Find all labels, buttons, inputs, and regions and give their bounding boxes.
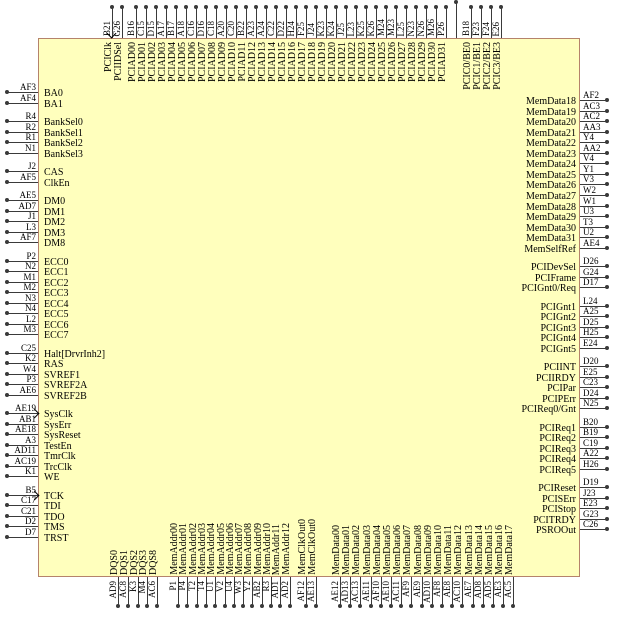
pin-label: DQS8 [148, 550, 159, 575]
pin-code: AF2 [583, 90, 613, 100]
pin-wire [580, 469, 607, 470]
pin-dot [358, 604, 362, 608]
pin-label: MemData07 [402, 525, 413, 575]
pin-wire [580, 287, 607, 288]
pin-label: DM1 [44, 207, 65, 218]
pin-label: DM3 [44, 228, 65, 239]
pin-label: MemData13 [464, 525, 475, 575]
pin-dot [260, 604, 264, 608]
pin-code: R4 [6, 111, 36, 121]
pin-code: L24 [583, 296, 613, 306]
pin-wire [7, 103, 38, 104]
pin-wire [7, 395, 38, 396]
pin-dot [204, 604, 208, 608]
pin-code: T3 [583, 217, 613, 227]
pin-dot [264, 5, 268, 9]
pin-label: MemData22 [526, 138, 576, 149]
pin-label: TDI [44, 501, 61, 512]
pin-dot [120, 5, 124, 9]
pin-label: SysClk [44, 409, 73, 420]
pin-wire [7, 476, 38, 477]
pin-code: AD2 [280, 581, 291, 599]
pin-dot [444, 5, 448, 9]
pin-dot [511, 604, 515, 608]
pin-code: U2 [583, 227, 613, 237]
pin-dot [164, 5, 168, 9]
pin-label: ECC3 [44, 288, 68, 299]
pin-dot [250, 604, 254, 608]
pin-dot [144, 5, 148, 9]
pin-label: MemData31 [526, 233, 576, 244]
pin-wire [7, 153, 38, 154]
pin-label: Halt[DrvrInh2] [44, 349, 105, 360]
pin-code: M3 [6, 324, 36, 334]
pin-code: M1 [6, 272, 36, 282]
pin-dot [234, 5, 238, 9]
pin-code: D20 [583, 356, 613, 366]
pin-label: PCIReq1 [539, 423, 576, 434]
pin-label: TMS [44, 522, 65, 533]
pin-label: PCIReq3 [539, 444, 576, 455]
pin-label: MemData19 [526, 107, 576, 118]
pin-code: D19 [583, 477, 613, 487]
pin-label: ClkEn [44, 178, 70, 189]
pin-wire [580, 348, 607, 349]
pin-code: AE9 [412, 581, 423, 598]
pin-code: AE7 [463, 581, 474, 598]
pin-dot [354, 5, 358, 9]
pin-code: E24 [583, 338, 613, 348]
pin-label: PCIPErr [542, 394, 576, 405]
pin-label: SysReset [44, 430, 81, 441]
pin-label: TmrClk [44, 451, 76, 462]
pin-dot [499, 5, 503, 9]
pin-dot [232, 604, 236, 608]
pin-label: ECC4 [44, 299, 68, 310]
pin-code: G24 [583, 267, 613, 277]
pin-label: TestEn [44, 441, 72, 452]
pin-label: PCIGnt0/Req [522, 283, 576, 294]
pin-label: MemData27 [526, 191, 576, 202]
pin-label: BankSel0 [44, 117, 83, 128]
pin-code: AC13 [350, 581, 361, 603]
pin-code: R2 [6, 122, 36, 132]
pin-label: DM8 [44, 238, 65, 249]
pin-dot [224, 5, 228, 9]
pin-code: AC6 [147, 581, 158, 598]
pin-dot [334, 5, 338, 9]
pin-wire [7, 242, 38, 243]
pin-dot [269, 604, 273, 608]
pin-dot [424, 5, 428, 9]
pin-dot [314, 5, 318, 9]
chip-body [38, 38, 580, 577]
pin-label: MemAddr12 [281, 523, 292, 575]
pin-code: N4 [6, 303, 36, 313]
pin-dot [384, 5, 388, 9]
pin-label: MemData29 [526, 212, 576, 223]
pin-dot [379, 604, 383, 608]
pin-dot [344, 5, 348, 9]
pin-dot [338, 604, 342, 608]
pin-code: AF3 [6, 82, 36, 92]
pin-dot [469, 5, 473, 9]
pin-label: MemData24 [526, 159, 576, 170]
pin-code: R1 [6, 132, 36, 142]
pin-dot [471, 604, 475, 608]
pin-code: D2 [6, 516, 36, 526]
pin-dot [374, 5, 378, 9]
pin-label: BankSel2 [44, 138, 83, 149]
pin-code: N1 [6, 143, 36, 153]
pin-label: ECC6 [44, 320, 68, 331]
pin-dot [399, 604, 403, 608]
pin-dot [348, 604, 352, 608]
pin-code: Y4 [583, 132, 613, 142]
pin-label: SVREF1 [44, 370, 80, 381]
pin-label: ECC5 [44, 309, 68, 320]
pin-dot [434, 5, 438, 9]
pin-code: AE6 [6, 385, 36, 395]
pin-label: PCIReq4 [539, 454, 576, 465]
pin-label: MemData30 [526, 223, 576, 234]
pin-code: AF5 [6, 172, 36, 182]
pin-dot [394, 5, 398, 9]
pin-dot [409, 604, 413, 608]
pin-code: AE11 [361, 581, 372, 602]
pin-label: BankSel1 [44, 128, 83, 139]
pin-dot [454, 0, 458, 4]
pin-code: AC5 [503, 581, 514, 598]
pin-code: D24 [583, 388, 613, 398]
pin-label: ECC0 [44, 257, 68, 268]
pin-code: B20 [583, 417, 613, 427]
pin-label: PCIStop [542, 504, 576, 515]
pin-label: RAS [44, 359, 63, 370]
pin-label: PCIFrame [535, 273, 576, 284]
pin-code: A22 [583, 448, 613, 458]
pin-dot [304, 5, 308, 9]
pin-code: AC3 [583, 101, 613, 111]
pin-label: PSROOut [536, 525, 576, 536]
pin-code: J1 [6, 211, 36, 221]
pin-label: MemData08 [413, 525, 424, 575]
pin-dot [244, 5, 248, 9]
pin-label: PCIGnt1 [540, 302, 576, 313]
pin-label: MemData03 [362, 525, 373, 575]
pin-label: BankSel3 [44, 149, 83, 160]
pin-dot [116, 604, 120, 608]
pin-dot [204, 5, 208, 9]
pin-code: AF7 [6, 232, 36, 242]
pin-label: MemData17 [504, 525, 515, 575]
pin-label: PCIPar [547, 383, 576, 394]
pin-dot [364, 5, 368, 9]
pin-label: PCITRDY [533, 515, 576, 526]
pin-label: MemData25 [526, 170, 576, 181]
pin-label: MemData20 [526, 117, 576, 128]
pin-dot [314, 604, 318, 608]
pin-dot [213, 604, 217, 608]
pin-code: E26 [491, 22, 502, 37]
pin-dot [126, 604, 130, 608]
pin-code: A3 [6, 435, 36, 445]
pin-dot [145, 604, 149, 608]
pin-label: PCISErr [542, 494, 576, 505]
pin-wire [580, 408, 607, 409]
pin-code: N25 [583, 398, 613, 408]
pin-code: C25 [6, 343, 36, 353]
pin-label: TrcClk [44, 462, 72, 473]
pin-dot [185, 604, 189, 608]
pin-dot [460, 604, 464, 608]
pin-label: PCIGnt5 [540, 344, 576, 355]
pin-code: P2 [6, 251, 36, 261]
pin-wire [580, 529, 607, 530]
pin-code: AC2 [583, 111, 613, 121]
pin-label: MemClkOut0 [307, 519, 318, 575]
pin-dot [404, 5, 408, 9]
pin-wire [456, 3, 457, 38]
pin-dot [489, 5, 493, 9]
pin-code: C23 [583, 377, 613, 387]
pin-code: N3 [6, 293, 36, 303]
pinout-diagram: B21PCIClkG26PCIIDSelB16PCIAD00C15PCIAD01… [0, 0, 620, 620]
pin-label: MemSelfRef [524, 244, 576, 255]
pin-code: C26 [583, 519, 613, 529]
pin-label: PCIReset [538, 483, 576, 494]
pin-label: CAS [44, 167, 63, 178]
pin-dot [288, 604, 292, 608]
pin-code: P26 [436, 22, 447, 36]
pin-label: TCK [44, 491, 64, 502]
pin-label: TRST [44, 533, 68, 544]
pin-code: D7 [6, 527, 36, 537]
pin-dot [136, 604, 140, 608]
pin-code: C21 [6, 506, 36, 516]
pin-label: SysErr [44, 420, 71, 431]
pin-dot [481, 604, 485, 608]
pin-label: PCIDevSel [531, 262, 576, 273]
pin-label: MemData26 [526, 180, 576, 191]
pin-dot [440, 604, 444, 608]
pin-code: V3 [583, 174, 613, 184]
pin-dot [110, 5, 114, 9]
pin-dot [254, 5, 258, 9]
pin-code: AC10 [452, 581, 463, 603]
pin-code: AF4 [6, 93, 36, 103]
pin-code: W2 [583, 185, 613, 195]
pin-code: D17 [583, 277, 613, 287]
pin-label: MemData02 [351, 525, 362, 575]
pin-label: SVREF2B [44, 391, 87, 402]
pin-code: K2 [6, 353, 36, 363]
pin-dot [241, 604, 245, 608]
pin-dot [223, 604, 227, 608]
pin-code: B19 [583, 427, 613, 437]
pin-dot [195, 604, 199, 608]
pin-code: AA3 [583, 122, 613, 132]
pin-code: W1 [583, 196, 613, 206]
pin-dot [304, 604, 308, 608]
pin-wire [580, 248, 607, 249]
pin-code: J2 [6, 161, 36, 171]
pin-label: PCIReq5 [539, 465, 576, 476]
pin-dot [184, 5, 188, 9]
pin-code: AB1 [6, 414, 36, 424]
pin-dot [369, 604, 373, 608]
pin-dot [284, 5, 288, 9]
pin-code: H25 [583, 327, 613, 337]
pin-code: AE5 [6, 190, 36, 200]
pin-wire [7, 334, 38, 335]
pin-dot [479, 5, 483, 9]
pin-label: BA1 [44, 99, 63, 110]
pin-code: AE18 [6, 424, 36, 434]
pin-dot [501, 604, 505, 608]
pin-label: MemData23 [526, 149, 576, 160]
pin-label: PCIIRDY [536, 373, 576, 384]
pin-code: AF9 [401, 581, 412, 597]
pin-dot [414, 5, 418, 9]
pin-wire [7, 537, 38, 538]
pin-code: W4 [6, 364, 36, 374]
pin-label: MemData21 [526, 128, 576, 139]
pin-code: L3 [6, 222, 36, 232]
pin-label: PCIINT [544, 362, 576, 373]
pin-code: N2 [6, 261, 36, 271]
pin-code: K1 [6, 466, 36, 476]
pin-dot [278, 604, 282, 608]
pin-label: PCIIDSel [113, 42, 124, 81]
pin-label: MemData12 [453, 525, 464, 575]
pin-code: AE13 [306, 581, 317, 602]
pin-code: H26 [583, 459, 613, 469]
pin-code: E25 [583, 367, 613, 377]
pin-dot [214, 5, 218, 9]
pin-code: C17 [6, 495, 36, 505]
pin-dot [294, 5, 298, 9]
pin-code: AD7 [6, 201, 36, 211]
pin-code: Y1 [583, 164, 613, 174]
pin-dot [274, 5, 278, 9]
pin-dot [389, 604, 393, 608]
pin-code: U3 [583, 206, 613, 216]
pin-code: AC19 [6, 456, 36, 466]
pin-label: PCIC3/BE3 [492, 42, 503, 90]
pin-code: AE4 [583, 238, 613, 248]
pin-label: WE [44, 472, 60, 483]
pin-code: E23 [583, 498, 613, 508]
pin-wire [7, 182, 38, 183]
pin-label: ECC1 [44, 267, 68, 278]
pin-label: TDO [44, 512, 65, 523]
pin-dot [134, 5, 138, 9]
pin-dot [176, 604, 180, 608]
pin-label: BA0 [44, 88, 63, 99]
pin-label: DM0 [44, 196, 65, 207]
pin-label: PCIReq2 [539, 433, 576, 444]
pin-code: M2 [6, 282, 36, 292]
pin-code: J23 [583, 488, 613, 498]
pin-label: MemData18 [526, 96, 576, 107]
pin-dot [420, 604, 424, 608]
pin-label: ECC7 [44, 330, 68, 341]
pin-code: A25 [583, 306, 613, 316]
pin-code: L2 [6, 314, 36, 324]
pin-code: G23 [583, 509, 613, 519]
pin-label: PCIGnt2 [540, 312, 576, 323]
pin-dot [174, 5, 178, 9]
pin-code: C19 [583, 438, 613, 448]
pin-dot [154, 5, 158, 9]
pin-code: G26 [112, 21, 123, 37]
pin-label: PCIGnt3 [540, 323, 576, 334]
pin-label: PCIAD31 [437, 42, 448, 82]
pin-code: V4 [583, 153, 613, 163]
pin-label: MemData28 [526, 202, 576, 213]
pin-dot [491, 604, 495, 608]
pin-code: P3 [6, 374, 36, 384]
pin-dot [324, 5, 328, 9]
pin-label: DM2 [44, 217, 65, 228]
pin-label: PCIGnt4 [540, 333, 576, 344]
pin-label: SVREF2A [44, 380, 87, 391]
pin-label: PCIReq0/Gnt [522, 404, 576, 415]
pin-dot [430, 604, 434, 608]
pin-code: D26 [583, 256, 613, 266]
pin-code: AD11 [6, 445, 36, 455]
pin-label: ECC2 [44, 278, 68, 289]
pin-code: D25 [583, 317, 613, 327]
pin-dot [194, 5, 198, 9]
pin-dot [155, 604, 159, 608]
pin-dot [450, 604, 454, 608]
pin-code: AA2 [583, 143, 613, 153]
